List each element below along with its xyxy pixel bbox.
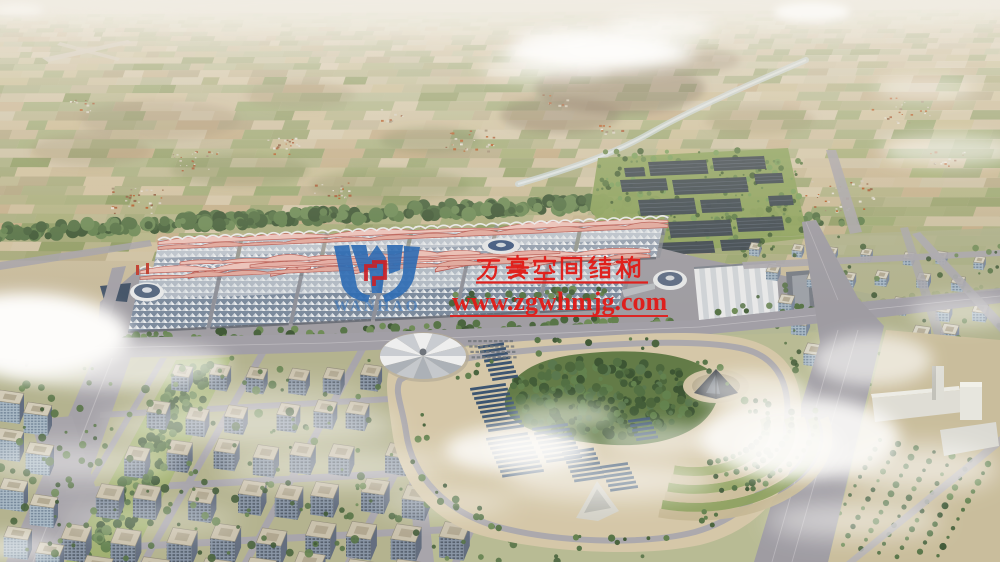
- svg-text:www.zgwhmjg.com: www.zgwhmjg.com: [452, 287, 668, 316]
- svg-text:WANHAO: WANHAO: [334, 298, 420, 315]
